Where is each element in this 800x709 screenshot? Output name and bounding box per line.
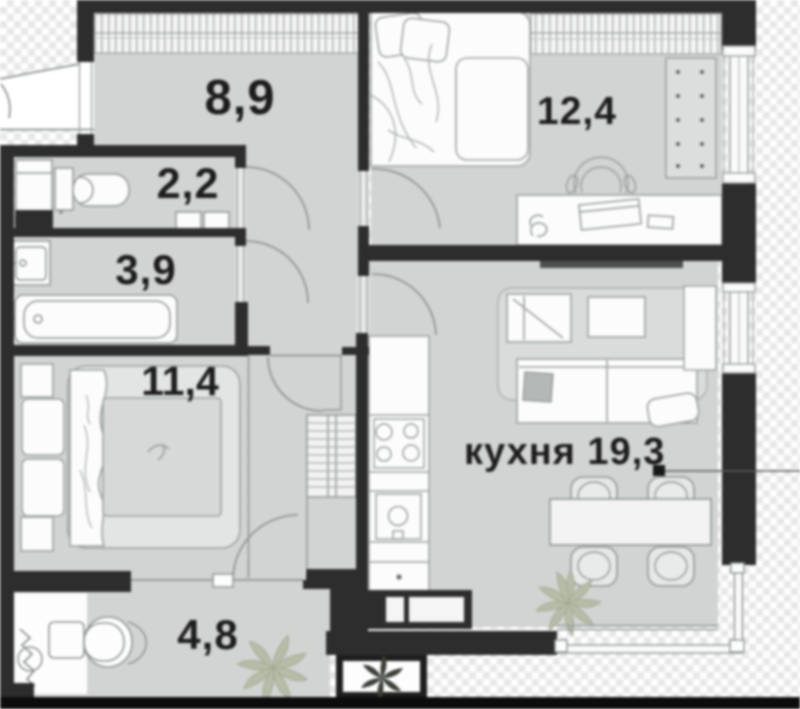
- svg-text:8,9: 8,9: [204, 71, 275, 125]
- svg-text:11,4: 11,4: [141, 358, 219, 404]
- svg-text:12,4: 12,4: [537, 90, 617, 133]
- svg-text:3,9: 3,9: [115, 246, 176, 293]
- svg-text:4,8: 4,8: [177, 611, 238, 658]
- svg-text:2,2: 2,2: [157, 160, 220, 208]
- svg-text:кухня 19,3: кухня 19,3: [464, 431, 665, 473]
